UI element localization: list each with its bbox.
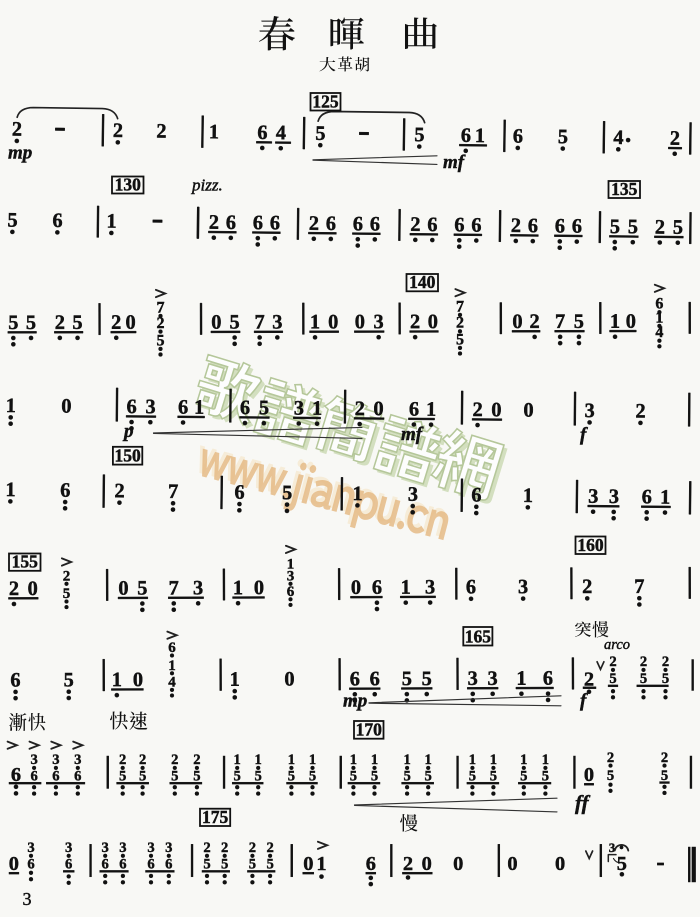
svg-text:0: 0 — [523, 399, 533, 421]
svg-text:1: 1 — [316, 853, 326, 875]
svg-text:140: 140 — [409, 272, 436, 292]
svg-text:2: 2 — [529, 311, 539, 333]
svg-text:1: 1 — [209, 121, 220, 143]
svg-text:mp: mp — [343, 691, 367, 712]
svg-text:6: 6 — [257, 122, 268, 144]
svg-text:2: 2 — [472, 399, 482, 421]
svg-text:3: 3 — [145, 396, 155, 418]
svg-text:6: 6 — [27, 857, 34, 873]
svg-text:1: 1 — [233, 577, 243, 599]
svg-text:6: 6 — [366, 853, 376, 875]
svg-text:0: 0 — [422, 853, 432, 875]
svg-text:0: 0 — [555, 853, 565, 875]
svg-text:1: 1 — [194, 397, 204, 419]
svg-text:6: 6 — [513, 125, 524, 147]
svg-text:0: 0 — [284, 669, 294, 691]
svg-text:2: 2 — [111, 312, 121, 334]
svg-text:3: 3 — [518, 576, 528, 598]
svg-text:2: 2 — [403, 853, 413, 875]
svg-text:1: 1 — [475, 125, 486, 147]
svg-text:pizz.: pizz. — [191, 176, 223, 195]
svg-text:150: 150 — [114, 445, 141, 465]
svg-text:2: 2 — [9, 578, 19, 600]
svg-text:6: 6 — [326, 213, 336, 235]
svg-text:5: 5 — [7, 209, 17, 231]
svg-text:2: 2 — [670, 128, 681, 150]
svg-text:1: 1 — [230, 669, 240, 691]
svg-text:5: 5 — [414, 124, 425, 146]
svg-text:1: 1 — [523, 485, 533, 507]
svg-text:7: 7 — [634, 576, 644, 598]
svg-text:155: 155 — [12, 552, 39, 572]
svg-text:0: 0 — [328, 311, 338, 333]
svg-text:6: 6 — [178, 396, 188, 418]
svg-text:6: 6 — [126, 396, 136, 418]
svg-text:0: 0 — [125, 312, 135, 334]
svg-text:arco: arco — [604, 637, 630, 653]
svg-text:mp: mp — [8, 143, 32, 164]
svg-text:mf: mf — [443, 152, 466, 173]
svg-text:0: 0 — [373, 398, 383, 420]
svg-text:6: 6 — [52, 210, 62, 232]
svg-text:3: 3 — [588, 486, 598, 508]
svg-text:2: 2 — [156, 121, 167, 143]
svg-text:6: 6 — [226, 212, 236, 234]
svg-text:7: 7 — [555, 311, 565, 333]
svg-text:2: 2 — [355, 398, 365, 420]
svg-text:5: 5 — [640, 671, 647, 687]
svg-text:3: 3 — [609, 486, 619, 508]
svg-text:5: 5 — [574, 311, 584, 333]
svg-text:0: 0 — [512, 311, 522, 333]
svg-text:2: 2 — [12, 118, 23, 140]
svg-text:5: 5 — [617, 853, 627, 875]
svg-text:3: 3 — [272, 311, 282, 333]
svg-text:1: 1 — [310, 311, 320, 333]
svg-text:3: 3 — [373, 311, 383, 333]
svg-text:2: 2 — [635, 400, 645, 422]
svg-text:5: 5 — [72, 312, 82, 334]
svg-text:7: 7 — [169, 577, 179, 599]
svg-text:6: 6 — [60, 480, 70, 502]
svg-text:0: 0 — [453, 853, 463, 875]
svg-text:2: 2 — [511, 215, 521, 237]
svg-text:130: 130 — [115, 174, 142, 194]
svg-text:6: 6 — [350, 668, 360, 690]
svg-text:125: 125 — [312, 91, 339, 111]
svg-text:1: 1 — [106, 211, 116, 233]
svg-text:1: 1 — [660, 486, 670, 508]
svg-text:3: 3 — [425, 577, 435, 599]
svg-text:5: 5 — [607, 768, 614, 784]
svg-text:170: 170 — [356, 720, 383, 740]
svg-text:135: 135 — [611, 179, 638, 199]
svg-text:0: 0 — [428, 311, 438, 333]
svg-text:0: 0 — [355, 311, 365, 333]
svg-text:2: 2 — [655, 216, 665, 238]
svg-text:0: 0 — [133, 669, 143, 691]
svg-text:6: 6 — [409, 398, 419, 420]
svg-text:1: 1 — [112, 669, 122, 691]
svg-text:1: 1 — [312, 398, 322, 420]
svg-text:3: 3 — [294, 397, 304, 419]
svg-text:1: 1 — [401, 577, 411, 599]
svg-text:1: 1 — [426, 399, 436, 421]
svg-text:3: 3 — [408, 484, 418, 506]
svg-text:7: 7 — [254, 311, 264, 333]
svg-text:6: 6 — [427, 214, 437, 236]
svg-text:6: 6 — [370, 213, 380, 235]
svg-text:6: 6 — [353, 213, 363, 235]
svg-text:5: 5 — [8, 312, 18, 334]
svg-text:2: 2 — [410, 214, 420, 236]
svg-text:0: 0 — [254, 577, 264, 599]
svg-text:5: 5 — [628, 216, 638, 238]
svg-text:5: 5 — [673, 217, 683, 239]
svg-text:5: 5 — [229, 312, 239, 334]
svg-text:165: 165 — [465, 626, 492, 646]
svg-text:0: 0 — [211, 312, 221, 334]
svg-text:2: 2 — [113, 120, 124, 142]
svg-text:6: 6 — [10, 669, 20, 691]
svg-text:4: 4 — [276, 122, 287, 144]
svg-text:0: 0 — [303, 853, 313, 875]
svg-text:6: 6 — [240, 397, 250, 419]
svg-text:5: 5 — [315, 123, 326, 145]
svg-text:6: 6 — [471, 214, 481, 236]
svg-text:0: 0 — [28, 578, 38, 600]
svg-text:3: 3 — [584, 400, 594, 422]
svg-text:7: 7 — [168, 481, 178, 503]
svg-text:0: 0 — [61, 395, 71, 417]
svg-text:6: 6 — [461, 125, 472, 147]
svg-text:5: 5 — [26, 312, 36, 334]
svg-text:5: 5 — [259, 397, 269, 419]
svg-text:p: p — [122, 421, 134, 442]
svg-text:175: 175 — [202, 807, 229, 827]
svg-text:6: 6 — [466, 576, 476, 598]
svg-text:1: 1 — [6, 395, 16, 417]
svg-text:6: 6 — [270, 212, 280, 234]
svg-text:6: 6 — [471, 484, 481, 506]
svg-text:1: 1 — [610, 311, 620, 333]
svg-text:3: 3 — [468, 668, 478, 690]
svg-text:3: 3 — [487, 668, 497, 690]
svg-text:0: 0 — [626, 311, 636, 333]
svg-text:5: 5 — [558, 126, 569, 148]
svg-text:5: 5 — [137, 578, 147, 600]
svg-text:0: 0 — [351, 577, 361, 599]
svg-text:160: 160 — [577, 535, 604, 555]
svg-text:6: 6 — [372, 577, 382, 599]
svg-text:5: 5 — [610, 216, 620, 238]
svg-text:6: 6 — [543, 668, 553, 690]
svg-text:0: 0 — [9, 853, 19, 875]
svg-text:2: 2 — [209, 212, 219, 234]
svg-text:6: 6 — [370, 668, 380, 690]
svg-text:1: 1 — [352, 483, 362, 505]
svg-text:3: 3 — [609, 840, 616, 855]
svg-text:6: 6 — [454, 214, 464, 236]
svg-text:3: 3 — [23, 889, 32, 909]
svg-text:0: 0 — [507, 853, 517, 875]
svg-text:5: 5 — [422, 668, 432, 690]
svg-text:4: 4 — [613, 127, 624, 149]
svg-text:6: 6 — [572, 216, 582, 238]
svg-text:5: 5 — [402, 668, 412, 690]
svg-text:mf: mf — [401, 424, 424, 445]
svg-text:2: 2 — [309, 213, 319, 235]
svg-text:0: 0 — [118, 578, 128, 600]
svg-text:6: 6 — [528, 215, 538, 237]
svg-text:3: 3 — [193, 577, 203, 599]
svg-text:6: 6 — [234, 482, 244, 504]
svg-text:2: 2 — [55, 312, 65, 334]
svg-text:2: 2 — [410, 311, 420, 333]
svg-text:0: 0 — [491, 399, 501, 421]
svg-text:0: 0 — [584, 764, 594, 786]
svg-text:6: 6 — [253, 212, 263, 234]
svg-text:1: 1 — [5, 479, 15, 501]
svg-text:5: 5 — [282, 482, 292, 504]
svg-text:1: 1 — [516, 668, 526, 690]
svg-text:ff: ff — [575, 791, 591, 815]
svg-text:2: 2 — [114, 480, 124, 502]
svg-text:5: 5 — [64, 669, 74, 691]
svg-text:2: 2 — [582, 576, 592, 598]
svg-text:6: 6 — [642, 486, 652, 508]
svg-text:5: 5 — [662, 671, 669, 687]
svg-text:5: 5 — [609, 671, 616, 687]
svg-text:6: 6 — [555, 215, 565, 237]
